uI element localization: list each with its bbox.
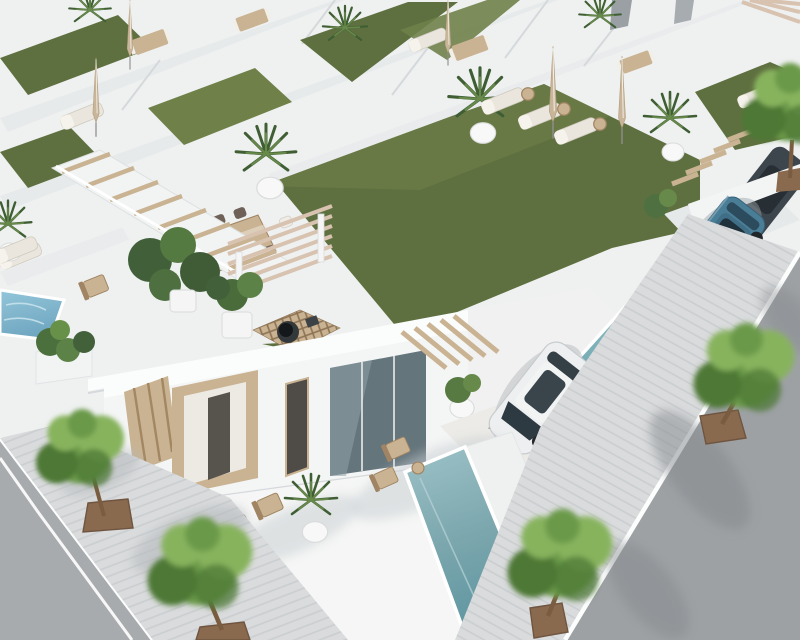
architectural-render: Aerial 3D render of a development of ide… — [0, 0, 800, 640]
facade-window — [286, 378, 308, 476]
villa-development-render: Aerial 3D render of a development of ide… — [0, 0, 800, 640]
entry-door-frame — [172, 370, 258, 496]
entry-door — [208, 392, 230, 480]
glass-doors — [330, 350, 426, 476]
